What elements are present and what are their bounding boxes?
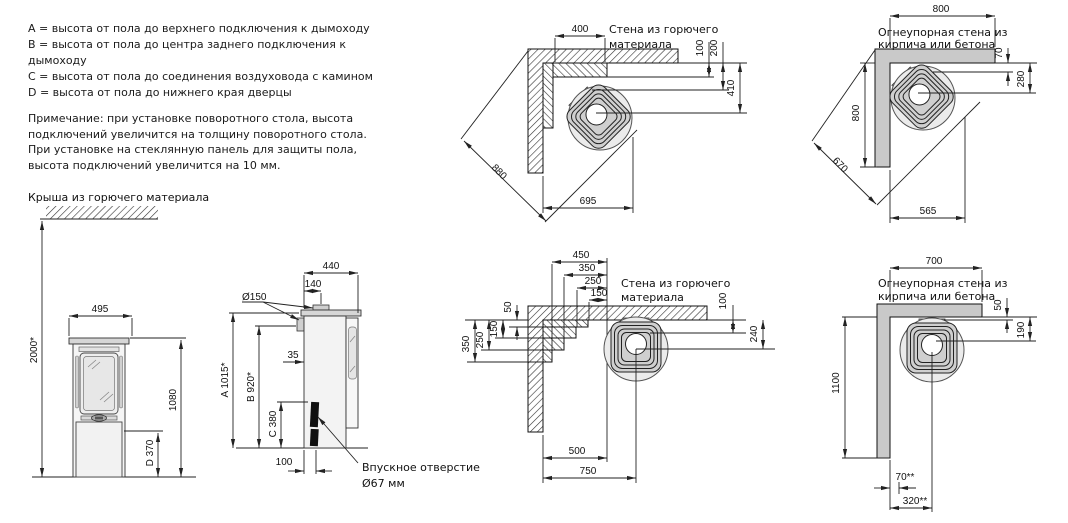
protection-panel-vertical xyxy=(543,63,553,128)
dim-flue-diameter: Ø150 xyxy=(242,292,267,303)
dim-50-left: 50 xyxy=(503,301,514,313)
dim-500: 500 xyxy=(569,446,586,457)
dim-670: 670 xyxy=(830,155,850,175)
stove-top-view-icon xyxy=(555,73,646,164)
roof-label: Крыша из горючего материала xyxy=(28,191,209,204)
dim-320-center: 320** xyxy=(903,496,928,507)
inlet-label: Впускное отверстие xyxy=(362,461,480,474)
dim-height: 1080 xyxy=(168,388,179,411)
dim-400: 400 xyxy=(572,24,589,35)
dim-inlet-offset: 100 xyxy=(276,457,293,468)
dim-50-gap: 50 xyxy=(993,299,1004,311)
protection-step xyxy=(543,320,588,327)
protection-panel-horizontal xyxy=(553,63,607,77)
stove-front-icon xyxy=(69,338,129,477)
stove-side-icon xyxy=(297,305,361,448)
dim-width: 495 xyxy=(92,304,109,315)
dim-70: 70 xyxy=(994,47,1005,59)
installation-diagrams: Крыша из горючего материала 2000* xyxy=(0,0,1068,523)
protection-step xyxy=(543,327,576,338)
inlet-diameter-label: Ø67 мм xyxy=(362,477,405,490)
dim-b: B 920* xyxy=(246,372,257,402)
wall-label: материала xyxy=(609,38,672,51)
wall-label: материала xyxy=(621,291,684,304)
dim-280: 280 xyxy=(1016,70,1027,87)
wall-label: Стена из горючего xyxy=(621,277,731,290)
corner-bottom-combustible: Стена из горючего материала 450 350 250 … xyxy=(461,250,775,483)
dim-200: 200 xyxy=(709,39,720,56)
dim-70-offset: 70** xyxy=(896,472,915,483)
dim-100: 100 xyxy=(695,39,706,56)
dim-880: 880 xyxy=(489,162,509,182)
dim-800-top: 800 xyxy=(933,4,950,15)
roof-section: Крыша из горючего материала xyxy=(28,191,209,219)
dim-door-height: D 370 xyxy=(145,439,156,466)
dim-rear-offset: 35 xyxy=(287,350,299,361)
dim-750: 750 xyxy=(580,466,597,477)
dim-240: 240 xyxy=(749,325,760,342)
dim-1100: 1100 xyxy=(831,372,842,394)
corner-top-combustible: Стена из горючего материала 400 100 200 … xyxy=(461,23,747,222)
dim-450: 450 xyxy=(573,250,590,261)
corner-top-fireproof: Огнеупорная стена из кирпича или бетона … xyxy=(812,4,1037,223)
dim-150-top: 150 xyxy=(591,288,608,299)
wall-label: кирпича или бетона xyxy=(878,38,995,51)
dim-695: 695 xyxy=(580,196,597,207)
roof-hatch xyxy=(46,206,158,219)
corner-bottom-fireproof: Огнеупорная стена из кирпича или бетона … xyxy=(831,256,1037,512)
dim-800-left: 800 xyxy=(851,104,862,121)
stove-top-view-icon xyxy=(878,53,969,144)
wall-label: Стена из горючего xyxy=(609,23,719,36)
wall-label: кирпича или бетона xyxy=(878,290,995,303)
dim-350-left: 350 xyxy=(461,335,472,352)
front-view: 2000* 495 1080 xyxy=(29,221,196,477)
dim-250-left: 250 xyxy=(475,331,486,348)
dim-250: 250 xyxy=(585,276,602,287)
dim-depth: 440 xyxy=(323,261,340,272)
dim-700: 700 xyxy=(926,256,943,267)
dim-350: 350 xyxy=(579,263,596,274)
side-view: 440 140 Ø150 A 1015* B 920* C 380 35 100 xyxy=(220,261,480,490)
dim-410: 410 xyxy=(726,79,737,96)
dim-190: 190 xyxy=(1016,321,1027,338)
protection-step xyxy=(543,350,552,362)
dim-a: A 1015* xyxy=(220,362,231,397)
manual-page: A = высота от пола до верхнего подключен… xyxy=(0,0,1068,523)
dim-100-gap: 100 xyxy=(718,292,729,309)
dim-flue-offset: 140 xyxy=(305,279,322,290)
wall-label: Огнеупорная стена из xyxy=(878,277,1008,290)
dim-c: C 380 xyxy=(268,410,279,437)
dim-150-left: 150 xyxy=(489,320,500,337)
dim-total-height: 2000* xyxy=(29,337,40,363)
dim-565: 565 xyxy=(920,206,937,217)
protection-step xyxy=(543,338,564,350)
